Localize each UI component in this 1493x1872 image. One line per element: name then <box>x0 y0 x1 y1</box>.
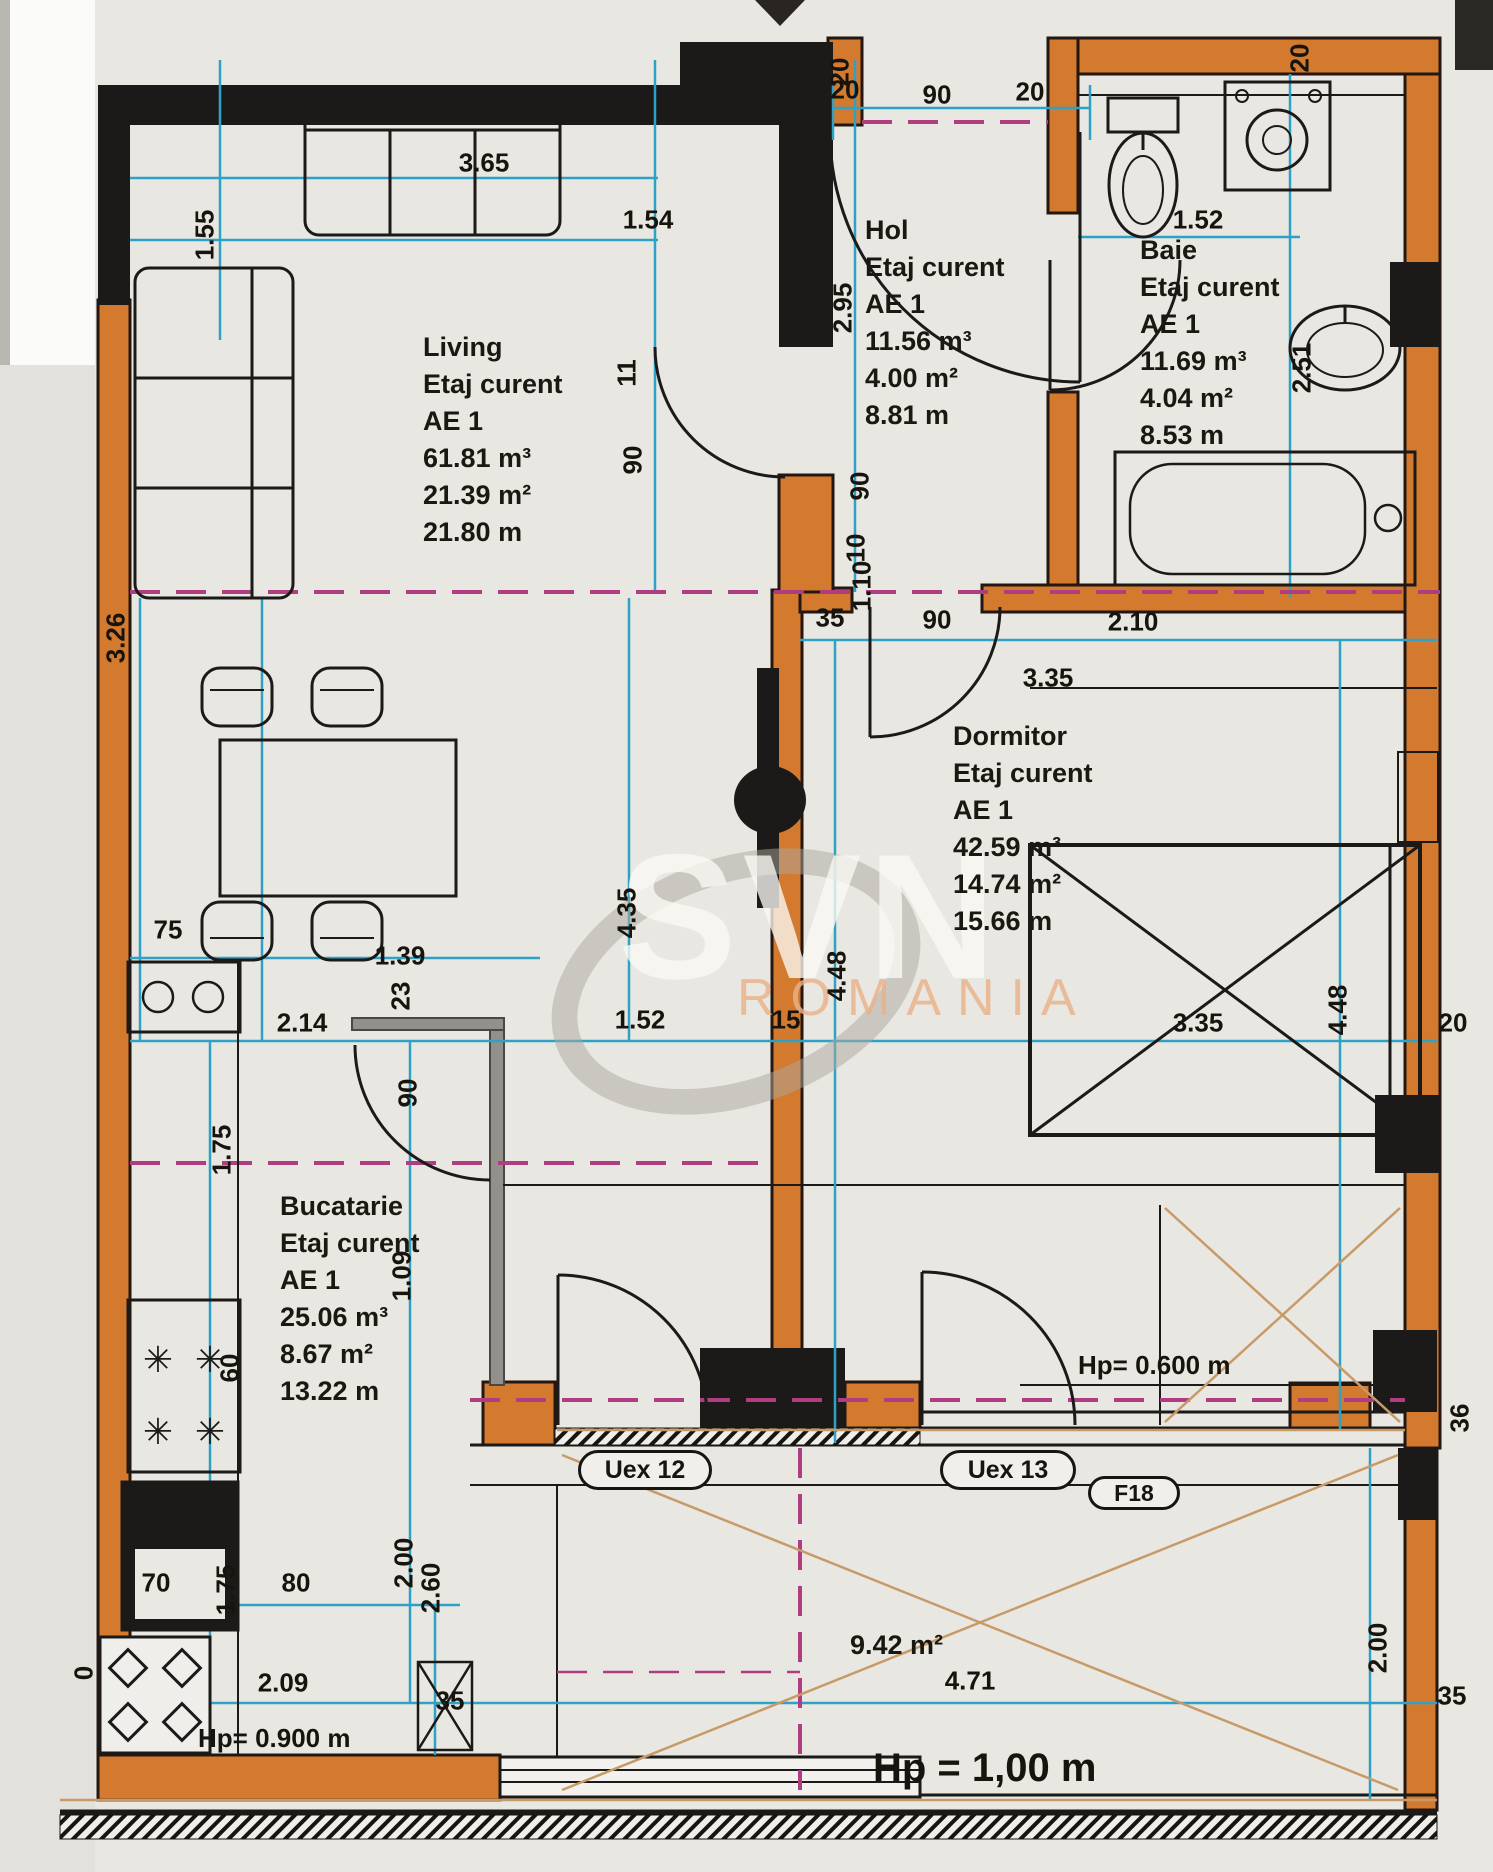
dim-label: 4.48 <box>1323 985 1354 1036</box>
dim-label: 2.00 <box>1363 1623 1394 1674</box>
room-unit: AE 1 <box>865 286 1005 323</box>
window-tag-text: Uex 13 <box>968 1456 1049 1485</box>
window-tag-uex13: Uex 13 <box>940 1450 1076 1490</box>
dim-label: 1.52 <box>615 1005 666 1036</box>
dim-label: 36 <box>1445 1404 1476 1433</box>
room-label-dormitor: Dormitor Etaj curent AE 1 42.59 m³ 14.74… <box>953 718 1093 940</box>
room-area: 14.74 m² <box>953 866 1093 903</box>
dim-label: 90 <box>923 605 952 636</box>
room-label-living: Living Etaj curent AE 1 61.81 m³ 21.39 m… <box>423 329 563 551</box>
dim-label: 35 <box>816 603 845 634</box>
room-perimeter: 15.66 m <box>953 903 1093 940</box>
dim-label: 2.10 <box>1108 607 1159 638</box>
room-volume: 11.56 m³ <box>865 323 1005 360</box>
dim-label: 20 <box>1016 77 1045 108</box>
dim-label: 1.75 <box>207 1125 238 1176</box>
floor-plan: ✳✳ ✳✳ SVN ROMANIA Living Etaj curent AE … <box>0 0 1493 1872</box>
room-name: Baie <box>1140 232 1280 269</box>
window-parapet-label: Hp= 0.600 m <box>1078 1350 1230 1381</box>
dim-label: 2.14 <box>277 1008 328 1039</box>
dim-label: 90 <box>845 472 876 501</box>
room-floor: Etaj curent <box>423 366 563 403</box>
room-area: 21.39 m² <box>423 477 563 514</box>
dim-label: 10 <box>841 534 872 563</box>
dim-label: 1.09 <box>387 1251 418 1302</box>
dim-label: 3.65 <box>459 148 510 179</box>
dim-label: 1.10 <box>847 561 878 612</box>
dim-label: 2.95 <box>828 283 859 334</box>
room-unit: AE 1 <box>423 403 563 440</box>
dim-label: 70 <box>142 1568 171 1599</box>
dim-label: 75 <box>154 915 183 946</box>
dim-label: 35 <box>436 1686 465 1717</box>
dim-label: 3.26 <box>101 613 132 664</box>
room-volume: 42.59 m³ <box>953 829 1093 866</box>
room-volume: 11.69 m³ <box>1140 343 1280 380</box>
dim-label: 20 <box>1439 1008 1468 1039</box>
room-area: 4.04 m² <box>1140 380 1280 417</box>
window-tag-text: Uex 12 <box>605 1456 686 1485</box>
kitchen-parapet-label: Hp= 0.900 m <box>198 1723 350 1754</box>
window-tag-text: F18 <box>1114 1480 1154 1507</box>
balcony-parapet-label: Hp = 1,00 m <box>873 1746 1096 1791</box>
room-unit: AE 1 <box>953 792 1093 829</box>
dim-label: 4.35 <box>612 888 643 939</box>
dim-label: 20 <box>1285 44 1316 73</box>
dim-label: 80 <box>282 1568 311 1599</box>
dim-label: 2.09 <box>258 1668 309 1699</box>
room-name: Hol <box>865 212 1005 249</box>
room-name: Bucatarie <box>280 1188 420 1225</box>
room-name: Living <box>423 329 563 366</box>
dim-label: 4.71 <box>945 1666 996 1697</box>
dim-label: 3.35 <box>1023 663 1074 694</box>
room-label-hol: Hol Etaj curent AE 1 11.56 m³ 4.00 m² 8.… <box>865 212 1005 434</box>
room-perimeter: 21.80 m <box>423 514 563 551</box>
window-tag-f18: F18 <box>1088 1476 1180 1510</box>
room-perimeter: 8.81 m <box>865 397 1005 434</box>
room-floor: Etaj curent <box>865 249 1005 286</box>
dim-label: 90 <box>618 446 649 475</box>
dim-label: 60 <box>215 1354 246 1383</box>
dim-label: 15 <box>772 1005 801 1036</box>
dim-label: 1.52 <box>1173 205 1224 236</box>
dim-label: 23 <box>386 982 417 1011</box>
room-label-baie: Baie Etaj curent AE 1 11.69 m³ 4.04 m² 8… <box>1140 232 1280 454</box>
room-floor: Etaj curent <box>1140 269 1280 306</box>
window-tag-uex12: Uex 12 <box>578 1450 712 1490</box>
dim-label: 11 <box>612 359 643 387</box>
dim-label: 2.51 <box>1287 343 1318 394</box>
dim-label: 90 <box>393 1079 424 1108</box>
dim-label: 90 <box>923 80 952 111</box>
dim-label: 4.48 <box>822 951 853 1002</box>
room-volume: 25.06 m³ <box>280 1299 420 1336</box>
room-floor: Etaj curent <box>953 755 1093 792</box>
dim-label: 1.55 <box>190 210 221 261</box>
room-volume: 61.81 m³ <box>423 440 563 477</box>
room-name: Dormitor <box>953 718 1093 755</box>
dim-label: 20 <box>831 75 860 106</box>
dim-label: 1.39 <box>375 941 426 972</box>
dim-label: 35 <box>1438 1681 1467 1712</box>
room-perimeter: 13.22 m <box>280 1373 420 1410</box>
dim-label: 1.54 <box>623 205 674 236</box>
dim-label: 3.35 <box>1173 1008 1224 1039</box>
dim-label: 2.60 <box>416 1563 447 1614</box>
dim-label: 1.75 <box>211 1565 242 1616</box>
room-area: 4.00 m² <box>865 360 1005 397</box>
dim-label: 0 <box>69 1666 100 1680</box>
room-perimeter: 8.53 m <box>1140 417 1280 454</box>
room-area: 8.67 m² <box>280 1336 420 1373</box>
room-unit: AE 1 <box>1140 306 1280 343</box>
